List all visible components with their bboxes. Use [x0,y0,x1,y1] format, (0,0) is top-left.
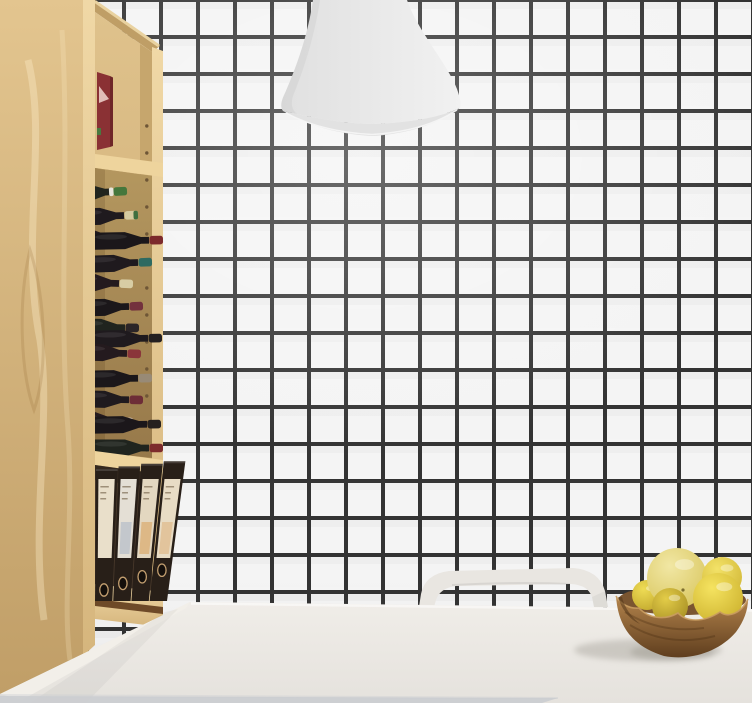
binder-label-text-line [144,492,150,494]
binder-label-text-line [144,486,152,488]
bookcase-side-front-edge [83,0,95,656]
peg-hole [145,232,148,235]
chair-back-frame [419,568,608,607]
chair-back [419,568,608,607]
bottle-capsule-band [109,187,114,196]
bottle-capsule [147,420,161,429]
bookcase [0,0,185,700]
binder-finger-hole [158,564,166,576]
peg-hole [145,205,148,208]
binder-finger-hole [138,571,146,583]
bottle-capsule [149,236,163,245]
lemon-stem-dot [681,588,684,591]
lemon-highlight [669,595,681,601]
bottle-capsule [125,323,139,332]
bottle-glass-highlight [95,441,127,446]
red-box-front [97,72,110,150]
bottle-capsule [113,187,127,196]
peg-hole [145,151,148,154]
binder-label-text-line [165,492,171,494]
binder-label-text-line [100,486,108,488]
peg-hole [145,367,148,370]
pendant-lamp [281,0,460,136]
peg-hole [145,313,148,316]
bottle-capsule [129,302,143,311]
scene-objects [0,0,752,703]
lemon-highlight [716,582,732,591]
peg-hole [145,286,148,289]
binder-label-text-line [143,498,149,500]
binder-label-text-line [165,498,171,500]
red-box-side [110,76,113,147]
bottle-capsule [138,258,152,267]
kitchen-scene [0,0,752,703]
binder-label-text-line [122,492,128,494]
binder-label-text-line [166,486,174,488]
peg-hole [145,124,148,127]
binder-finger-hole [119,577,127,589]
bottle-capsule [129,395,143,404]
bottle-capsule [119,279,133,288]
bottle-capsule [138,374,152,383]
bottle-capsule [127,349,141,358]
peg-hole [145,178,148,181]
binder-label-text-line [100,492,106,494]
lemon-highlight [721,564,734,571]
peg-hole [145,394,148,397]
binders-shelf [95,461,185,601]
red-box-green-tag [97,128,101,135]
binder-label-text-line [100,498,106,500]
binder-finger-hole [100,584,108,596]
bottle-capsule-band [133,211,138,220]
binder-label-text-line [122,498,128,500]
lamp-shade [281,0,460,124]
binder-label-text-line [122,486,130,488]
bottle-capsule [150,444,164,453]
lemon-highlight [675,559,694,570]
red-box [97,72,113,150]
bottle-capsule [148,334,162,343]
